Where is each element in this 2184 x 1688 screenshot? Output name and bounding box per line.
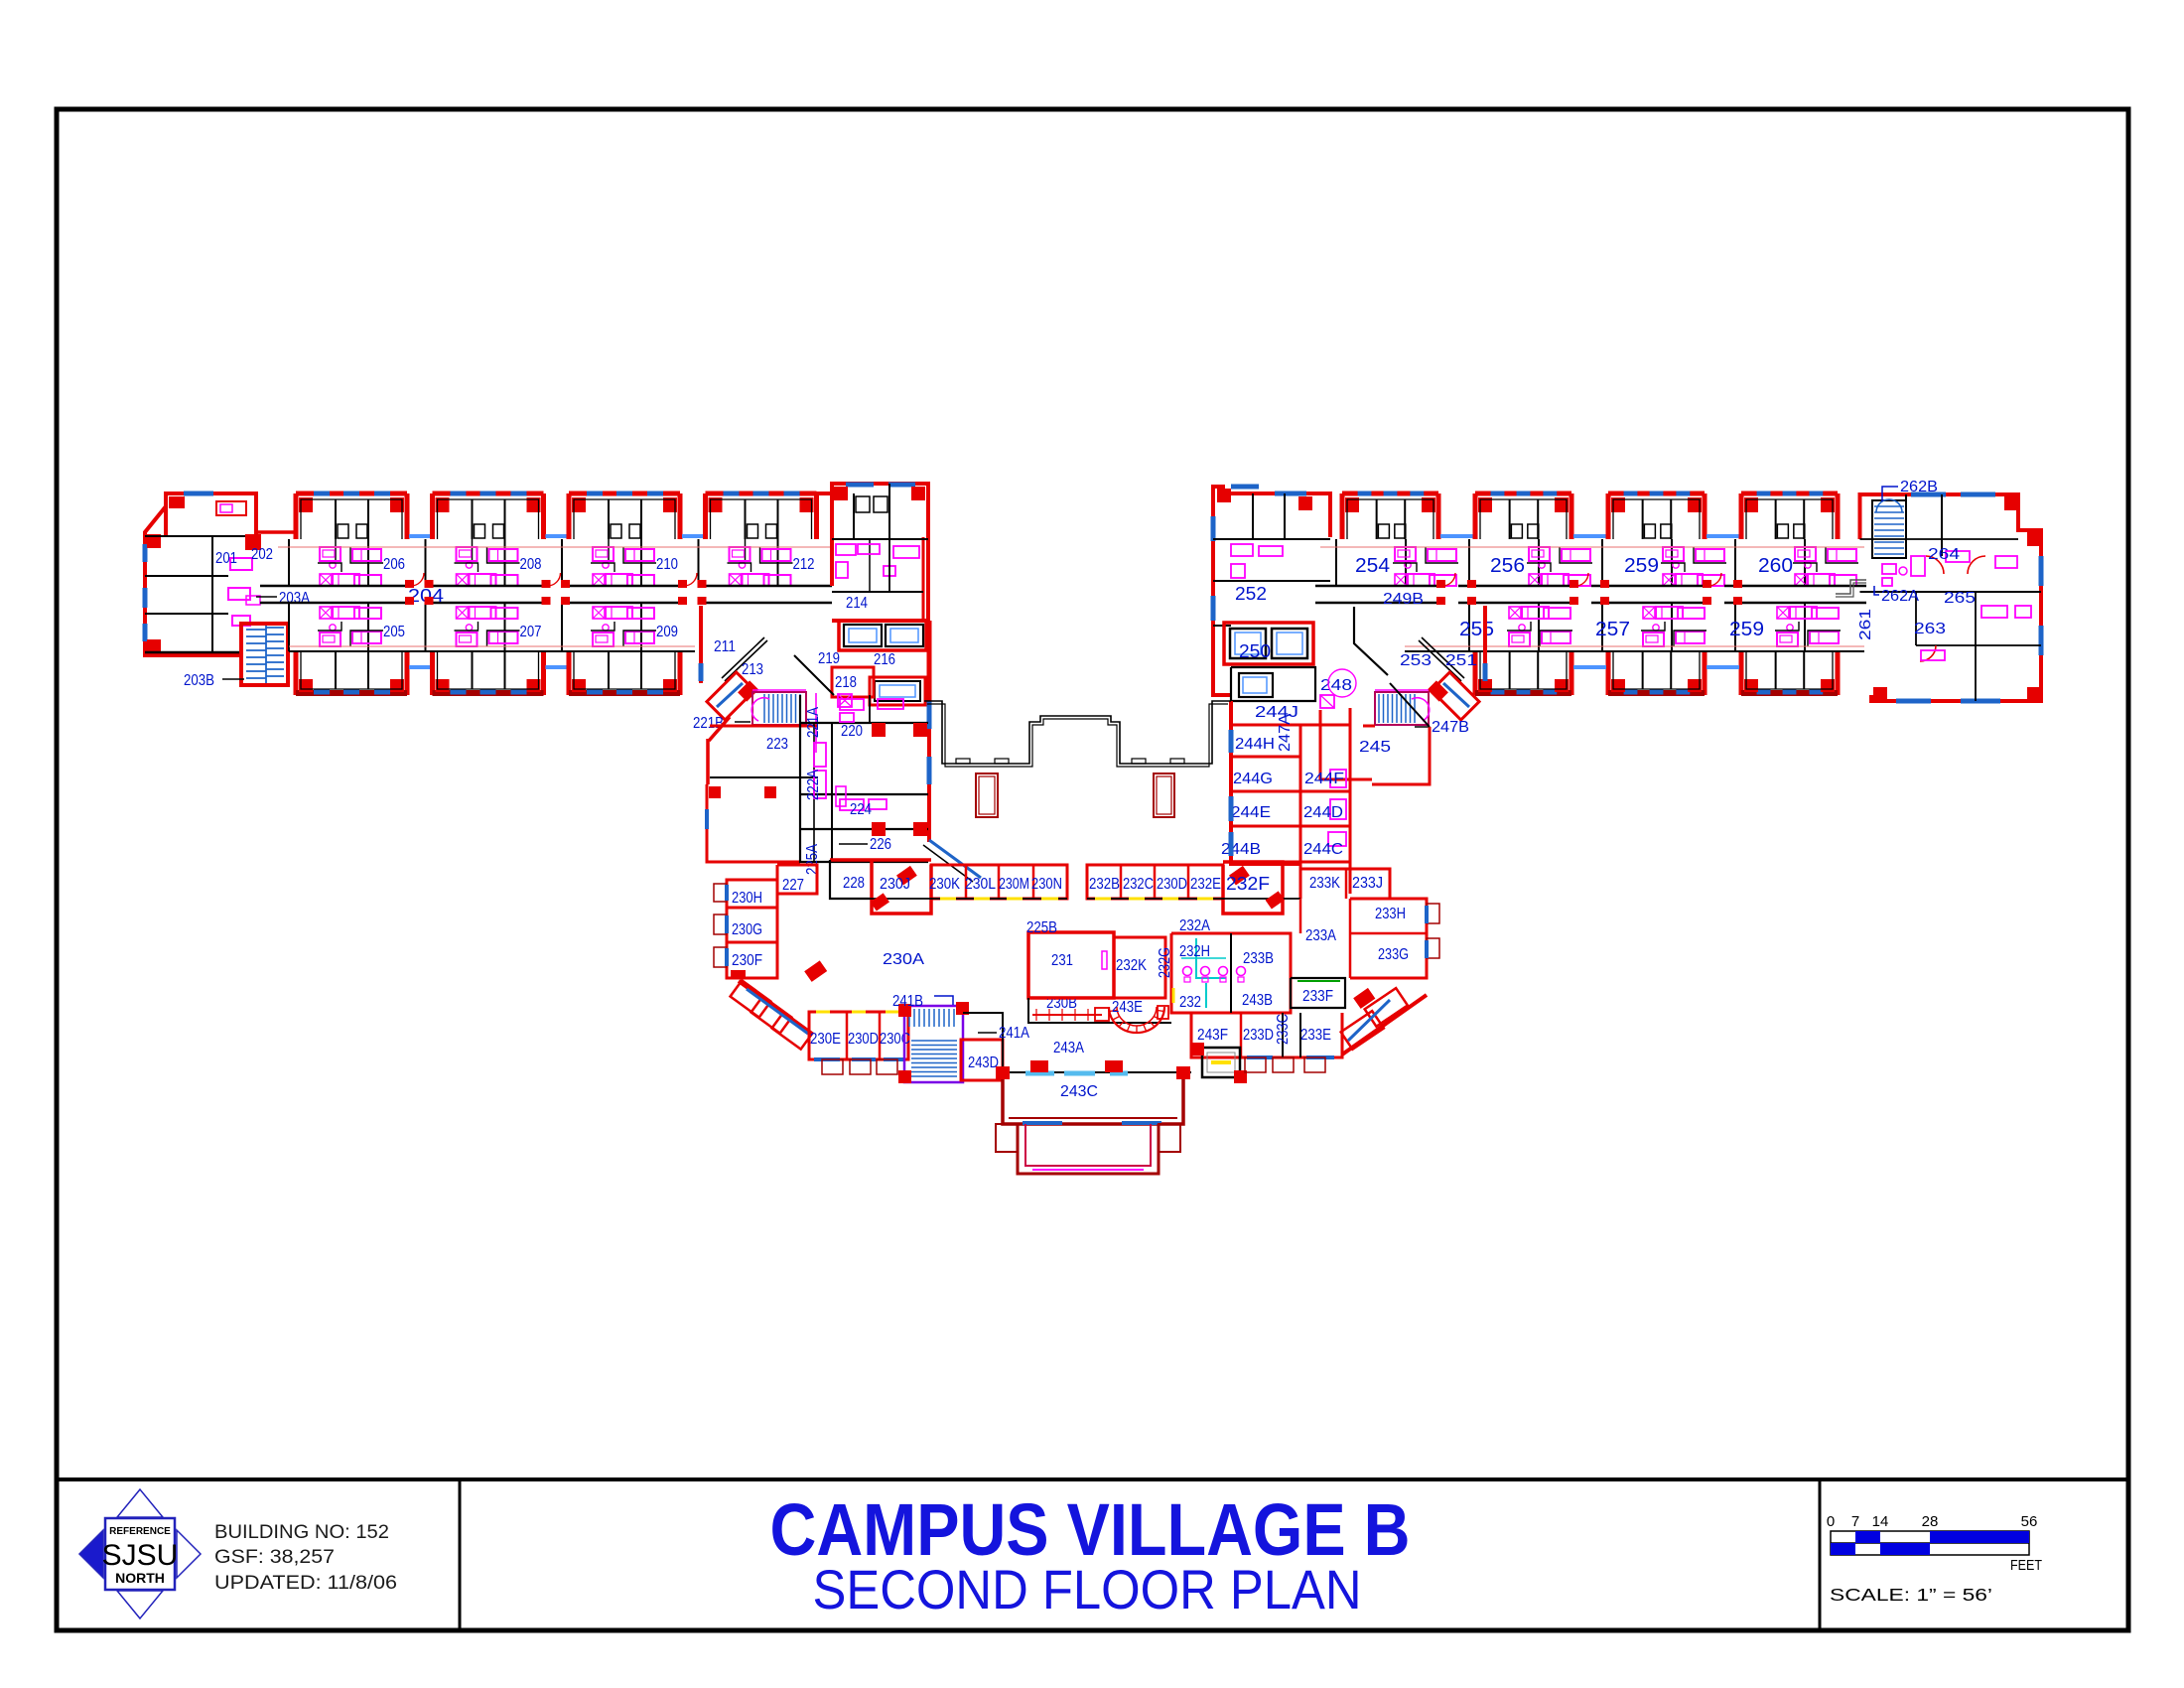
svg-text:247A: 247A xyxy=(1277,714,1294,752)
svg-text:232G: 232G xyxy=(1157,947,1173,978)
svg-text:230A: 230A xyxy=(883,951,924,968)
svg-text:251: 251 xyxy=(1445,652,1477,669)
svg-text:241B: 241B xyxy=(892,993,923,1010)
svg-text:230K: 230K xyxy=(929,876,960,893)
svg-text:28: 28 xyxy=(1922,1513,1939,1530)
svg-text:207: 207 xyxy=(520,624,542,640)
svg-text:210: 210 xyxy=(656,556,678,573)
svg-text:243F: 243F xyxy=(1197,1027,1228,1044)
svg-text:245: 245 xyxy=(1359,739,1391,756)
svg-text:263: 263 xyxy=(1914,621,1946,637)
svg-text:GSF: 38,257: GSF: 38,257 xyxy=(214,1547,335,1568)
svg-text:202: 202 xyxy=(251,546,273,563)
svg-text:230J: 230J xyxy=(880,876,910,893)
svg-text:214: 214 xyxy=(846,595,868,612)
svg-text:221A: 221A xyxy=(805,707,822,738)
svg-text:216: 216 xyxy=(874,651,895,668)
svg-text:248: 248 xyxy=(1320,677,1352,694)
svg-text:254: 254 xyxy=(1355,555,1390,577)
svg-text:252: 252 xyxy=(1235,584,1267,604)
svg-text:211: 211 xyxy=(714,638,736,655)
svg-text:244D: 244D xyxy=(1303,804,1343,821)
svg-text:230N: 230N xyxy=(1031,876,1062,893)
svg-text:212: 212 xyxy=(793,556,815,573)
svg-text:243E: 243E xyxy=(1112,999,1143,1016)
svg-text:213: 213 xyxy=(742,661,763,678)
svg-text:227: 227 xyxy=(782,877,804,894)
svg-text:226: 226 xyxy=(870,836,891,853)
svg-text:232: 232 xyxy=(1179,994,1201,1011)
svg-text:232F: 232F xyxy=(1226,874,1270,894)
svg-text:220: 220 xyxy=(841,723,863,740)
svg-text:203B: 203B xyxy=(184,672,214,689)
svg-text:230F: 230F xyxy=(732,952,762,969)
svg-text:224: 224 xyxy=(850,801,872,818)
svg-text:261: 261 xyxy=(1857,609,1874,640)
svg-text:233H: 233H xyxy=(1375,906,1406,922)
svg-text:244B: 244B xyxy=(1221,841,1261,858)
svg-text:230G: 230G xyxy=(732,921,762,938)
svg-text:262A: 262A xyxy=(1881,588,1919,605)
svg-text:232C: 232C xyxy=(1123,876,1154,893)
svg-text:243C: 243C xyxy=(1060,1083,1098,1100)
svg-text:233G: 233G xyxy=(1378,946,1409,963)
svg-text:232H: 232H xyxy=(1179,943,1210,960)
svg-text:257: 257 xyxy=(1595,619,1630,640)
svg-text:244H: 244H xyxy=(1235,736,1275,753)
svg-text:244E: 244E xyxy=(1231,804,1271,821)
svg-text:230C: 230C xyxy=(880,1031,910,1048)
svg-text:231: 231 xyxy=(1051,952,1073,969)
svg-text:209: 209 xyxy=(656,624,678,640)
svg-text:SECOND FLOOR PLAN: SECOND FLOOR PLAN xyxy=(813,1558,1362,1620)
svg-text:232B: 232B xyxy=(1089,876,1120,893)
svg-text:230M: 230M xyxy=(999,876,1029,893)
svg-text:253: 253 xyxy=(1400,652,1432,669)
svg-text:56: 56 xyxy=(2021,1513,2038,1530)
svg-text:241A: 241A xyxy=(999,1025,1029,1042)
svg-text:256: 256 xyxy=(1490,555,1525,577)
svg-text:244F: 244F xyxy=(1304,771,1344,787)
svg-text:206: 206 xyxy=(383,556,405,573)
svg-text:233E: 233E xyxy=(1300,1027,1331,1044)
svg-text:232K: 232K xyxy=(1116,957,1147,974)
svg-text:228: 228 xyxy=(843,875,865,892)
svg-text:243D: 243D xyxy=(968,1055,999,1071)
svg-text:259: 259 xyxy=(1624,555,1659,577)
svg-text:225B: 225B xyxy=(1026,919,1057,936)
svg-text:243A: 243A xyxy=(1053,1040,1084,1056)
svg-text:219: 219 xyxy=(818,650,840,667)
svg-text:233C: 233C xyxy=(1275,1014,1292,1045)
svg-text:230L: 230L xyxy=(965,876,996,893)
svg-text:230D: 230D xyxy=(848,1031,879,1048)
svg-text:230E: 230E xyxy=(810,1031,841,1048)
svg-text:260: 260 xyxy=(1758,555,1793,577)
svg-text:208: 208 xyxy=(520,556,542,573)
svg-text:233D: 233D xyxy=(1243,1027,1274,1044)
svg-text:243B: 243B xyxy=(1242,992,1273,1009)
svg-text:222A: 222A xyxy=(805,770,822,800)
svg-text:249B: 249B xyxy=(1383,591,1424,608)
svg-text:201: 201 xyxy=(215,550,237,567)
svg-text:7: 7 xyxy=(1851,1513,1859,1530)
svg-text:BUILDING NO: 152: BUILDING NO: 152 xyxy=(214,1522,389,1543)
svg-text:233J: 233J xyxy=(1352,875,1383,892)
svg-text:259: 259 xyxy=(1729,619,1764,640)
svg-text:SCALE: 1” = 56’: SCALE: 1” = 56’ xyxy=(1830,1585,1992,1605)
svg-text:232A: 232A xyxy=(1179,917,1210,934)
svg-text:264: 264 xyxy=(1928,546,1960,563)
svg-text:205: 205 xyxy=(383,624,405,640)
svg-text:SJSU: SJSU xyxy=(102,1539,179,1572)
svg-text:247B: 247B xyxy=(1432,719,1469,736)
svg-text:232E: 232E xyxy=(1190,876,1221,893)
svg-text:262B: 262B xyxy=(1900,479,1938,495)
svg-text:UPDATED: 11/8/06: UPDATED: 11/8/06 xyxy=(214,1573,397,1594)
svg-text:265: 265 xyxy=(1944,590,1976,607)
svg-text:233F: 233F xyxy=(1302,988,1333,1005)
svg-text:233K: 233K xyxy=(1309,875,1340,892)
svg-text:223: 223 xyxy=(766,736,788,753)
svg-text:230H: 230H xyxy=(732,890,762,907)
svg-text:255: 255 xyxy=(1459,619,1494,640)
svg-text:203A: 203A xyxy=(279,590,310,607)
svg-text:230D: 230D xyxy=(1157,876,1187,893)
svg-text:233A: 233A xyxy=(1305,927,1336,944)
svg-text:0: 0 xyxy=(1827,1513,1835,1530)
svg-text:244C: 244C xyxy=(1303,841,1343,858)
svg-text:NORTH: NORTH xyxy=(115,1570,165,1586)
svg-text:14: 14 xyxy=(1872,1513,1889,1530)
svg-text:244G: 244G xyxy=(1233,771,1273,787)
svg-text:233B: 233B xyxy=(1243,950,1274,967)
svg-text:218: 218 xyxy=(835,674,857,691)
svg-text:250: 250 xyxy=(1239,641,1271,661)
svg-text:FEET: FEET xyxy=(2010,1558,2042,1574)
svg-text:REFERENCE: REFERENCE xyxy=(109,1526,171,1537)
